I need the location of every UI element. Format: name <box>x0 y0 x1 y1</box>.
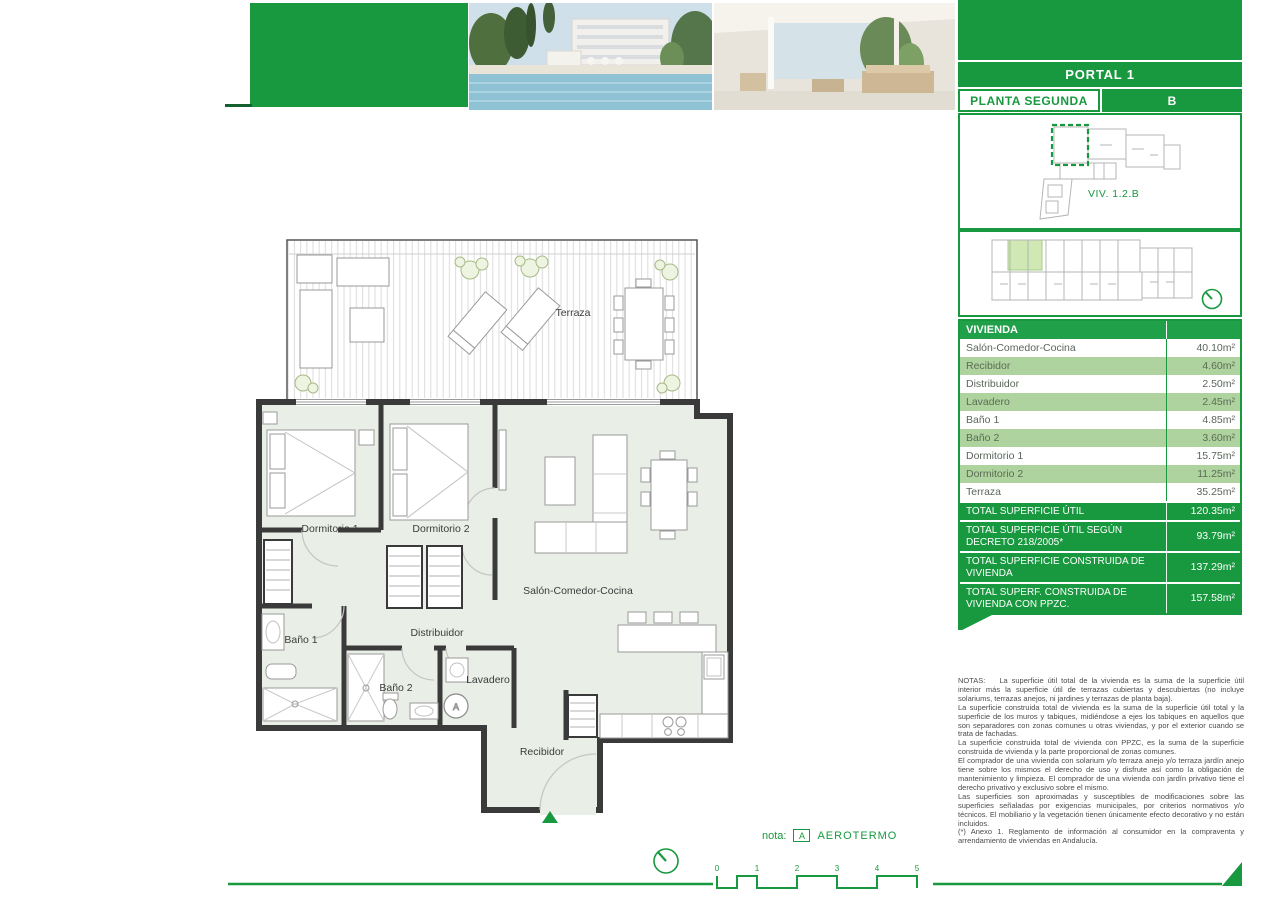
nota-label: nota: <box>762 830 786 842</box>
scale-tick-label: 3 <box>835 864 840 873</box>
brand-color-block <box>250 3 468 107</box>
room-label-dormitorio2: Dormitorio 2 <box>412 523 469 535</box>
notes: NOTAS:La superficie útil total de la viv… <box>958 677 1244 846</box>
room-label-recibidor: Recibidor <box>520 746 565 758</box>
photo-terrace-interior <box>714 3 955 110</box>
scale-tick-label: 0 <box>715 864 720 873</box>
unit-ref-label: VIV. 1.2.B <box>1088 188 1139 200</box>
floor-label: PLANTA SEGUNDA <box>970 94 1088 108</box>
floor-label-cell: PLANTA SEGUNDA <box>958 89 1100 112</box>
sidebar-header-block <box>958 0 1242 60</box>
washing-machine-icon <box>446 658 468 682</box>
scale-tick-label: 5 <box>915 864 920 873</box>
scale-tick-label: 4 <box>875 864 880 873</box>
footer-rule-and-scale: 0 1 2 3 4 5 <box>225 845 1245 900</box>
table-row: Dormitorio 211.25m² <box>960 465 1240 483</box>
bidet-icon <box>266 664 296 679</box>
portal-label: PORTAL 1 <box>1065 67 1134 82</box>
room-label-lavadero: Lavadero <box>466 674 510 686</box>
north-indicator-icon <box>1203 290 1222 309</box>
pool-photo-graphic <box>469 3 712 110</box>
note-paragraph: El comprador de una vivienda con solariu… <box>958 757 1244 793</box>
shower-icon <box>263 688 337 721</box>
brand-underline <box>225 104 252 107</box>
total-row: TOTAL SUPERFICIE ÚTIL SEGÚN DECRETO 218/… <box>960 520 1240 551</box>
aerotermo-marker: A <box>444 694 468 718</box>
aerotermo-label: AEROTERMO <box>817 830 897 842</box>
room-label-bano1: Baño 1 <box>284 634 317 646</box>
unit-plan-thumbnail: VIV. 1.2.B <box>958 113 1242 230</box>
footer-graphics: 0 1 2 3 4 5 <box>225 845 1245 900</box>
note-paragraph: La superficie construida total de vivien… <box>958 704 1244 740</box>
unit-letter: B <box>1168 94 1177 108</box>
highlighted-unit-fill <box>1008 240 1042 270</box>
building-thumbnail-graphic <box>960 232 1240 315</box>
unit-letter-cell: B <box>1102 89 1242 112</box>
scale-tick-label: 2 <box>795 864 800 873</box>
window-icon <box>296 398 660 406</box>
svg-text:A: A <box>453 702 459 712</box>
scale-bar: 0 1 2 3 4 5 <box>715 864 920 888</box>
north-indicator-icon <box>654 849 678 873</box>
notes-title: NOTAS: <box>958 676 985 685</box>
building-plan-thumbnail <box>958 230 1242 317</box>
table-row: Dormitorio 115.75m² <box>960 447 1240 465</box>
thumbnail-building-outline <box>1040 127 1180 219</box>
room-label-salon: Salón-Comedor-Cocina <box>523 585 633 597</box>
floor-plan: Terraza <box>240 228 745 828</box>
washbasin-icon <box>410 703 438 719</box>
plan-sheet: PORTAL 1 PLANTA SEGUNDA B VIV. <box>0 0 1280 905</box>
table-row: Baño 23.60m² <box>960 429 1240 447</box>
room-label-distribuidor: Distribuidor <box>410 627 464 639</box>
washbasin-icon <box>262 614 284 650</box>
table-tail-notch <box>958 611 1000 630</box>
closet-icon <box>568 695 597 737</box>
table-row: Lavadero2.45m² <box>960 393 1240 411</box>
photo-pool-exterior <box>469 3 712 110</box>
floor-plan-drawing: Terraza <box>240 228 745 828</box>
aerotermo-note: nota: A AEROTERMO <box>762 828 897 843</box>
dining-table-icon <box>625 288 663 360</box>
coffee-table-icon <box>545 457 575 505</box>
floor-row: PLANTA SEGUNDA B <box>958 89 1242 112</box>
aerotermo-box-icon: A <box>793 829 810 842</box>
table-row: Terraza35.25m² <box>960 483 1240 501</box>
scale-tick-label: 1 <box>755 864 760 873</box>
toilet-icon <box>383 693 398 719</box>
portal-banner: PORTAL 1 <box>958 62 1242 87</box>
note-paragraph: Las superficies son aproximadas y suscep… <box>958 793 1244 829</box>
tv-bench-icon <box>499 430 506 490</box>
room-label-bano2: Baño 2 <box>379 682 412 694</box>
areas-table-title: VIVIENDA <box>960 324 1166 336</box>
room-label-terraza: Terraza <box>555 307 590 319</box>
total-row: TOTAL SUPERF. CONSTRUIDA DE VIVIENDA CON… <box>960 582 1240 613</box>
bed-icon <box>390 424 468 520</box>
note-paragraph: La superficie construida total de vivien… <box>958 739 1244 757</box>
wardrobe-icon <box>264 540 292 604</box>
note-paragraph: (*) Anexo 1. Reglamento de información a… <box>958 828 1244 846</box>
total-row: TOTAL SUPERFICIE CONSTRUIDA DE VIVIENDA1… <box>960 551 1240 582</box>
terrace-photo-graphic <box>714 3 955 110</box>
total-row: TOTAL SUPERFICIE ÚTIL120.35m² <box>960 501 1240 520</box>
table-row: Recibidor4.60m² <box>960 357 1240 375</box>
table-row: Baño 14.85m² <box>960 411 1240 429</box>
note-paragraph: La superficie útil total de la vivienda … <box>958 676 1244 703</box>
table-row: Distribuidor2.50m² <box>960 375 1240 393</box>
table-row: Salón-Comedor-Cocina40.10m² <box>960 339 1240 357</box>
footer-corner-wedge <box>1222 862 1242 886</box>
unit-thumbnail-graphic: VIV. 1.2.B <box>960 115 1240 228</box>
areas-table: VIVIENDA Salón-Comedor-Cocina40.10m² Rec… <box>958 319 1242 615</box>
areas-table-header: VIVIENDA <box>960 321 1240 339</box>
room-label-dormitorio1: Dormitorio 1 <box>301 523 358 535</box>
